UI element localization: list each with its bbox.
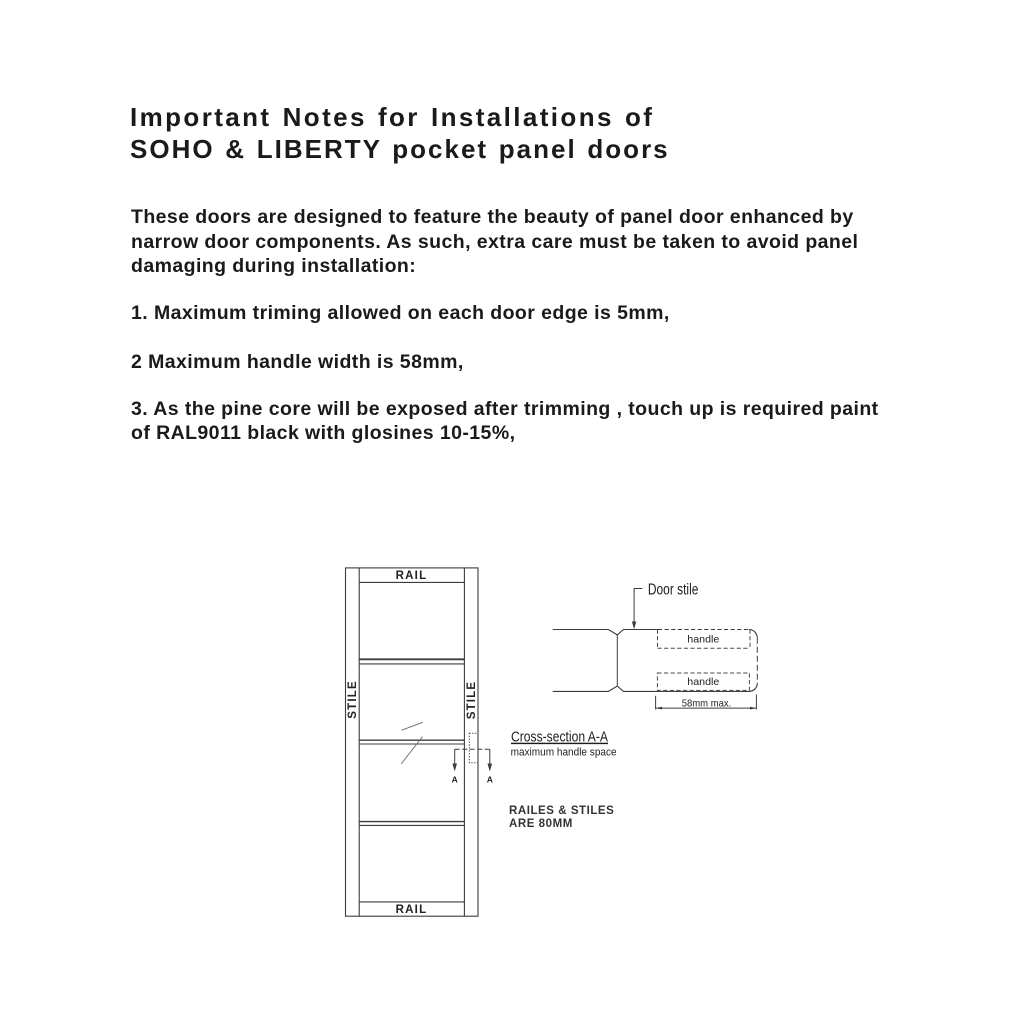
svg-text:RAIL: RAIL: [396, 570, 428, 582]
svg-text:STILE: STILE: [347, 680, 359, 719]
svg-text:58mm max.: 58mm max.: [682, 697, 732, 709]
svg-text:RAILES & STILES: RAILES & STILES: [509, 805, 614, 817]
svg-text:Door stile: Door stile: [648, 581, 699, 598]
svg-text:A: A: [487, 775, 493, 785]
svg-text:maximum handle space: maximum handle space: [511, 747, 617, 759]
svg-text:STILE: STILE: [466, 681, 478, 720]
svg-text:handle: handle: [687, 633, 719, 645]
svg-text:RAIL: RAIL: [396, 904, 428, 916]
svg-text:A: A: [452, 775, 458, 785]
svg-text:handle: handle: [687, 676, 719, 688]
svg-text:Cross-section A-A: Cross-section A-A: [511, 730, 608, 746]
svg-text:ARE 80MM: ARE 80MM: [509, 818, 573, 830]
